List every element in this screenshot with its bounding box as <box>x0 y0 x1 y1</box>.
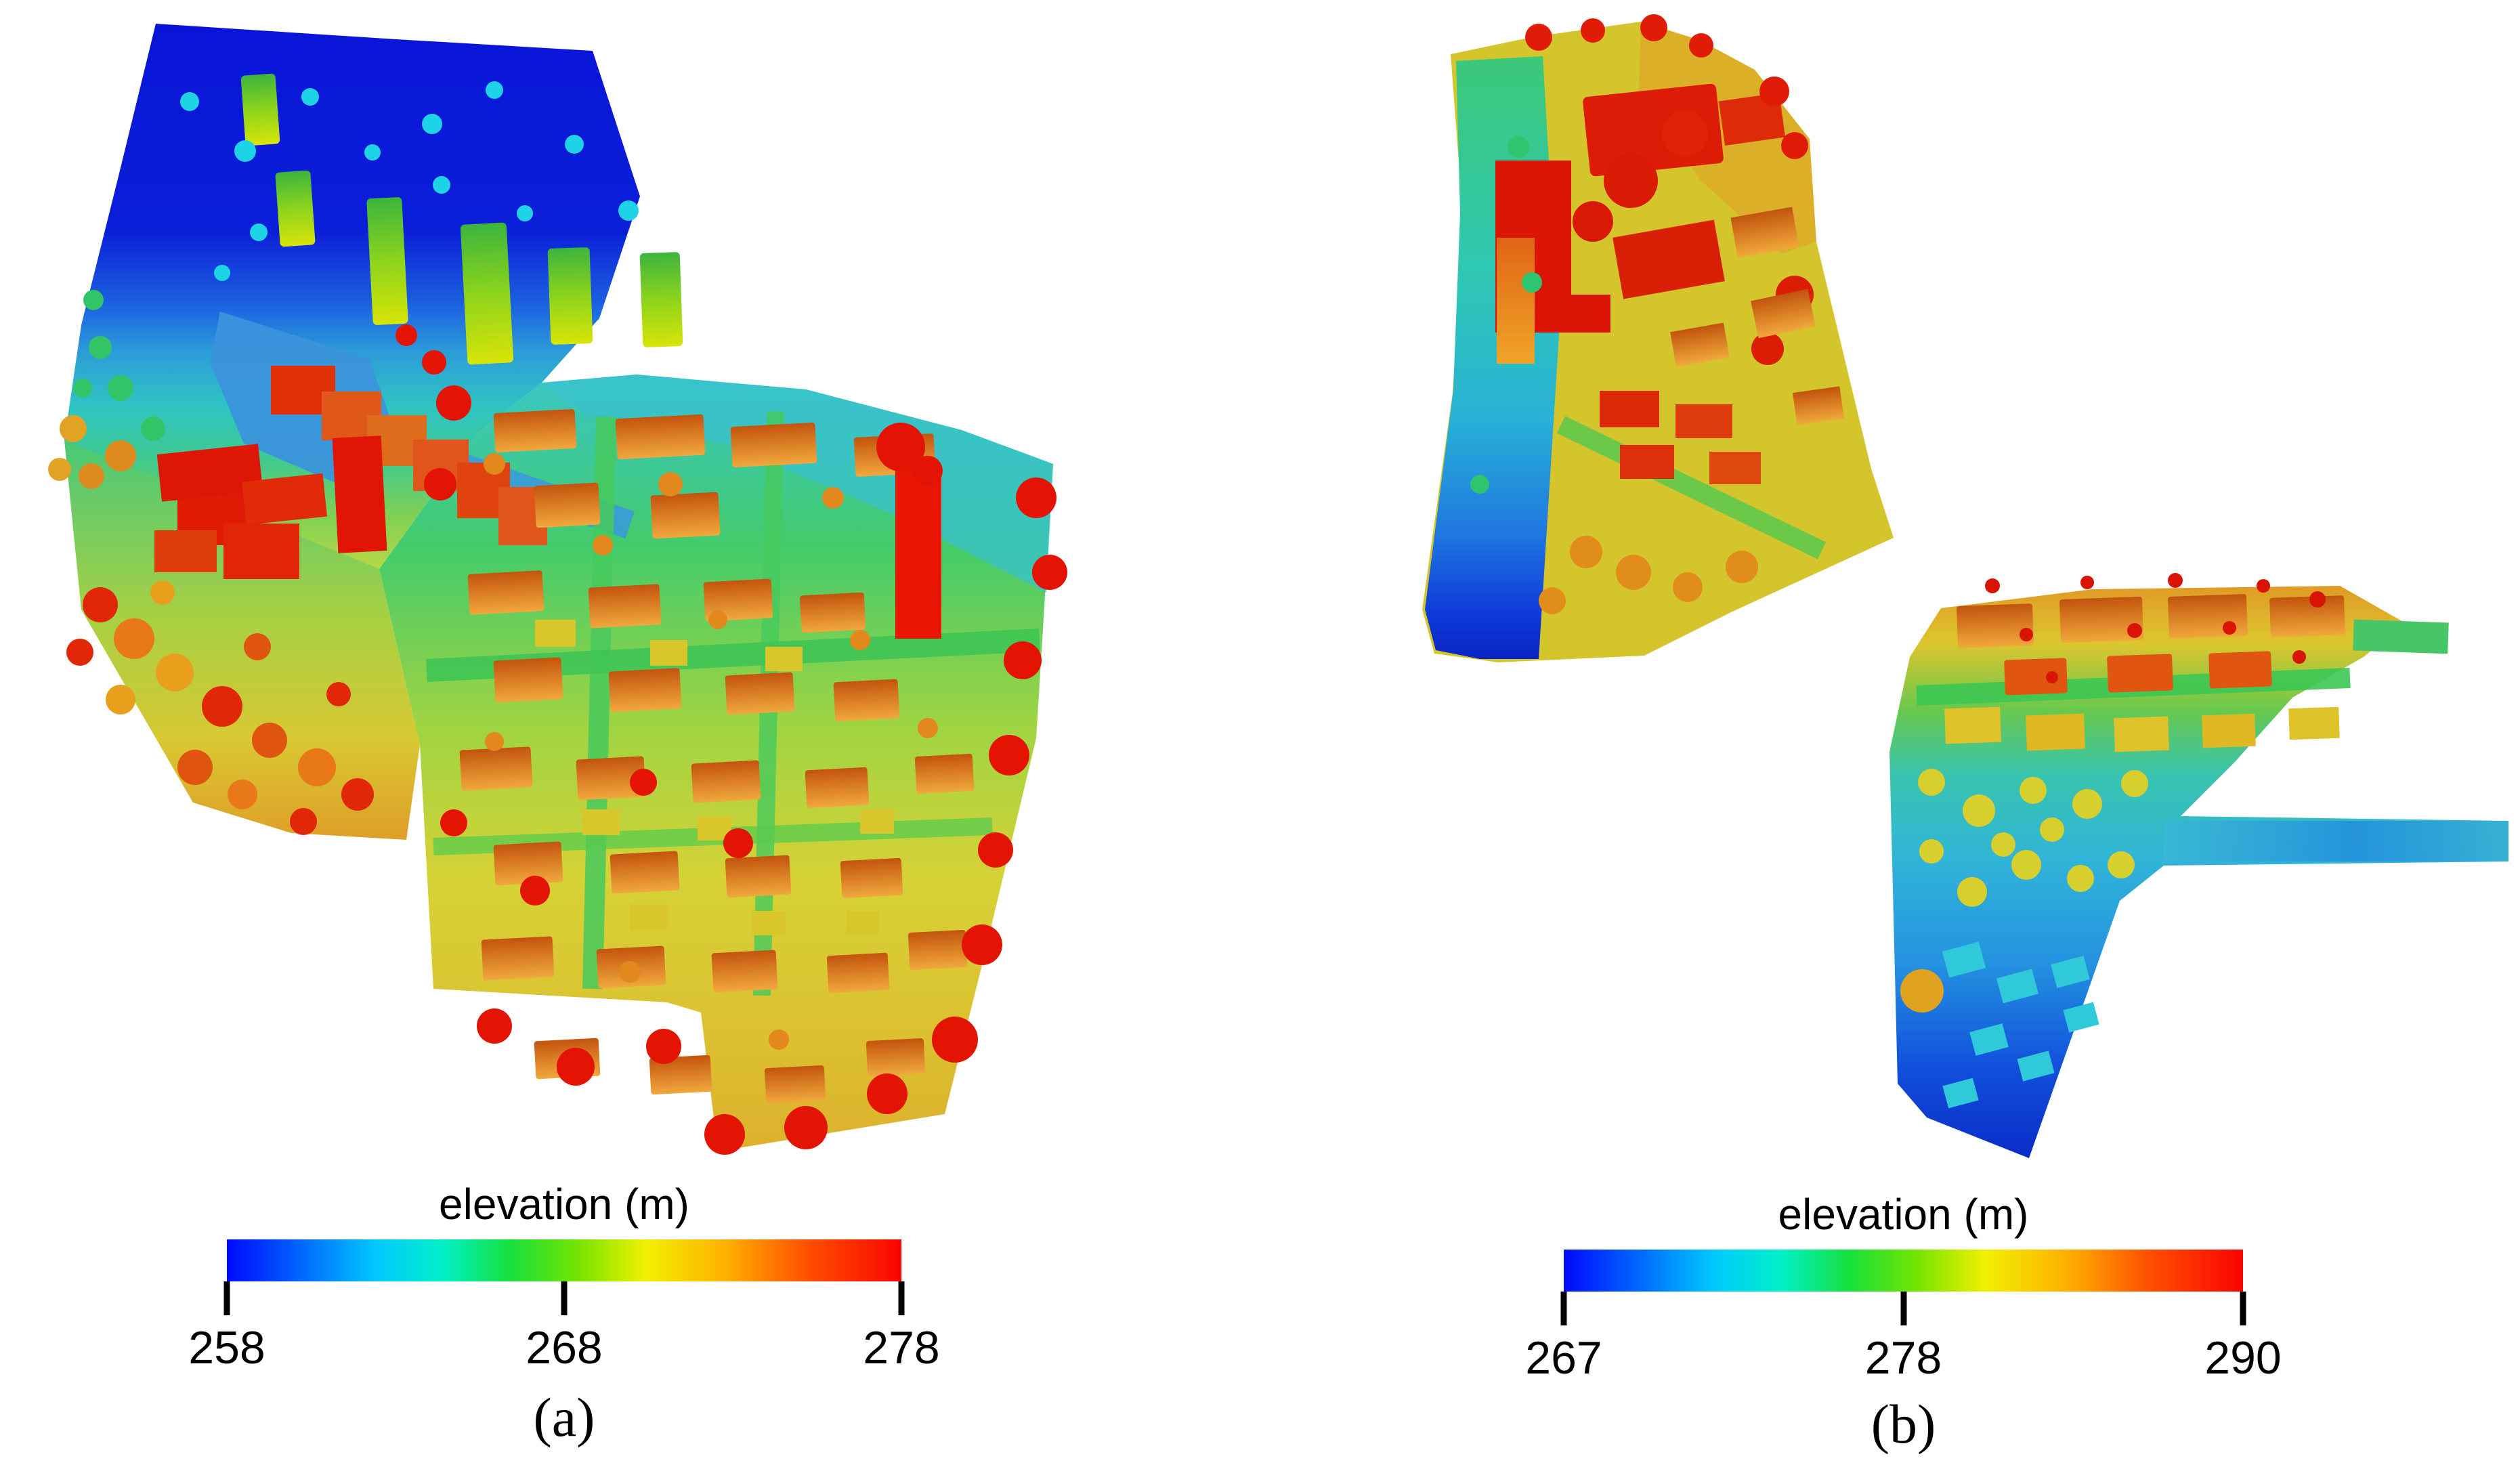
colorbar-b-title: elevation (m) <box>1564 1190 2243 1240</box>
colorbar-a: elevation (m) 258268278 <box>227 1180 901 1376</box>
colorbar-tick-label: 268 <box>526 1325 602 1371</box>
colorbar-a-title: elevation (m) <box>227 1180 901 1230</box>
colorbar-tick-label: 290 <box>2204 1335 2281 1381</box>
map-b-terrain <box>1422 22 2508 1158</box>
colorbar-tick <box>1561 1292 1567 1325</box>
colorbar-b-gradient <box>1564 1250 2243 1292</box>
colorbar-a-gradient <box>227 1239 901 1281</box>
colorbar-b: elevation (m) 267278290 <box>1564 1190 2243 1386</box>
caption-b: (b) <box>1564 1397 2243 1452</box>
colorbar-tick <box>224 1281 230 1315</box>
colorbar-tick-label: 278 <box>1865 1335 1942 1381</box>
colorbar-tick <box>2240 1292 2246 1325</box>
colorbar-tick-label: 278 <box>863 1325 939 1371</box>
elevation-map-a <box>20 10 1090 1172</box>
colorbar-tick <box>561 1281 568 1315</box>
colorbar-b-ticks: 267278290 <box>1564 1292 2243 1386</box>
colorbar-a-ticks: 258268278 <box>227 1281 901 1376</box>
colorbar-tick-label: 258 <box>188 1325 265 1371</box>
colorbar-tick-label: 267 <box>1525 1335 1602 1381</box>
caption-a: (a) <box>227 1390 901 1445</box>
colorbar-tick <box>1900 1292 1906 1325</box>
elevation-map-b <box>1415 10 2516 1182</box>
figure-elevation-maps: elevation (m) 258268278 (a) <box>0 0 2520 1469</box>
colorbar-tick <box>899 1281 905 1315</box>
